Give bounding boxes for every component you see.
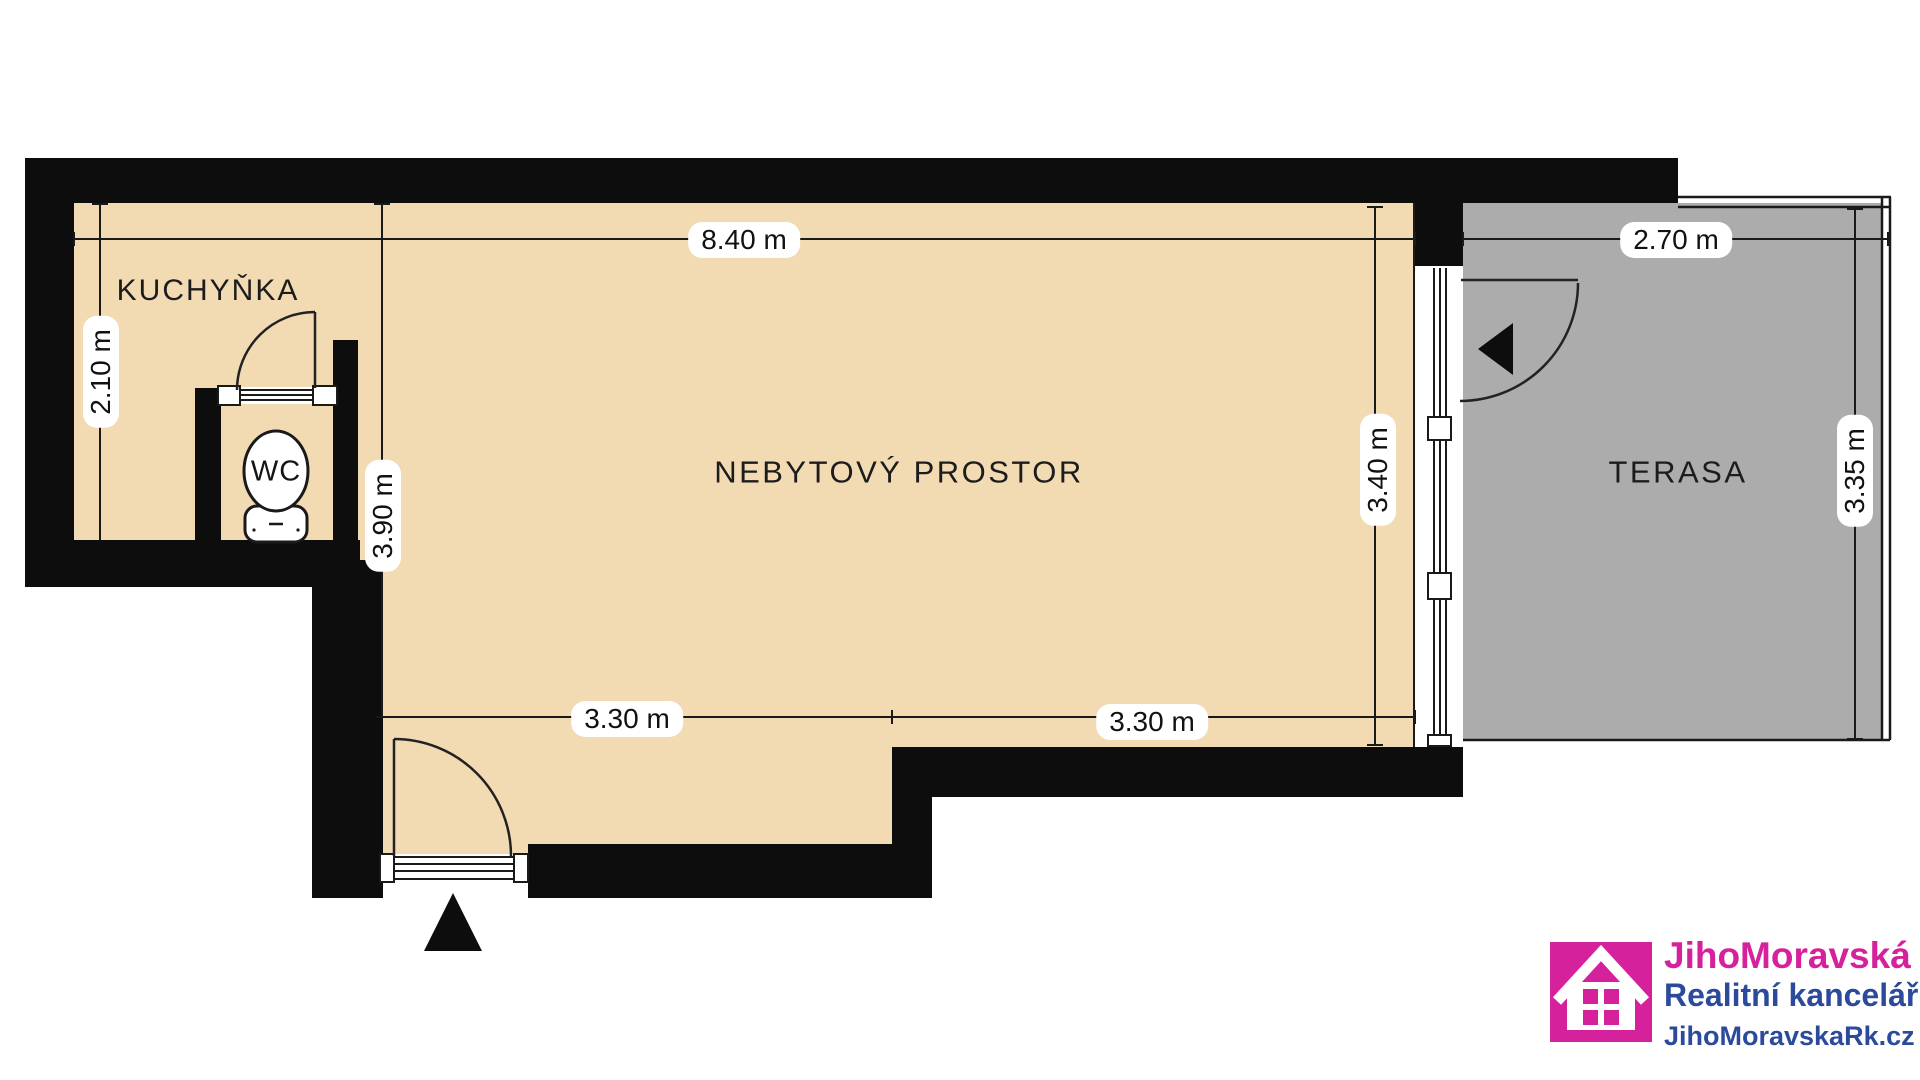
wall-wc-right xyxy=(333,340,358,540)
dimension-terrace-width: 2.70 m xyxy=(1620,222,1732,258)
logo-brand-text: JihoMoravská xyxy=(1664,937,1911,974)
logo-house-icon xyxy=(1550,942,1652,1042)
terrace-window xyxy=(1428,268,1451,746)
window-mullion xyxy=(1428,573,1451,599)
wall-window-pier xyxy=(1415,203,1463,266)
wall-top xyxy=(25,158,1678,203)
dimension-bottom-right: 3.30 m xyxy=(1096,704,1208,740)
wall-kitchen-bottom xyxy=(25,540,360,587)
main-room-label: NEBYTOVÝ PROSTOR xyxy=(714,457,1084,488)
window-mullion xyxy=(1428,417,1451,440)
dimension-left-depth: 3.90 m xyxy=(365,460,401,572)
dimension-main-depth: 3.40 m xyxy=(1360,414,1396,526)
dimension-bottom-left: 3.30 m xyxy=(571,701,683,737)
floorplan-drawing xyxy=(0,0,1920,1080)
dimension-top-width: 8.40 m xyxy=(688,222,800,258)
kitchen-room-label: KUCHYŇKA xyxy=(117,276,300,306)
wall-step xyxy=(892,747,932,898)
window-end-cap xyxy=(1428,735,1451,746)
logo-subtitle-text: Realitní kancelář xyxy=(1664,979,1918,1011)
wall-lower-left xyxy=(312,560,383,898)
floorplan-page: KUCHYŇKA WC NEBYTOVÝ PROSTOR TERASA 8.40… xyxy=(0,0,1920,1080)
dimension-terrace-depth: 3.35 m xyxy=(1837,415,1873,527)
wall-left xyxy=(25,158,74,587)
wall-bottom-right xyxy=(932,747,1463,797)
wall-wc-left xyxy=(195,388,221,540)
terrace-room-label: TERASA xyxy=(1608,457,1747,488)
dimension-kitchen-depth: 2.10 m xyxy=(83,316,119,428)
logo-website-text: JihoMoravskaRk.cz xyxy=(1664,1023,1915,1050)
wall-entry-bottom xyxy=(528,844,932,898)
wc-room-label: WC xyxy=(251,458,301,487)
main-entrance-arrow-icon xyxy=(424,893,482,951)
